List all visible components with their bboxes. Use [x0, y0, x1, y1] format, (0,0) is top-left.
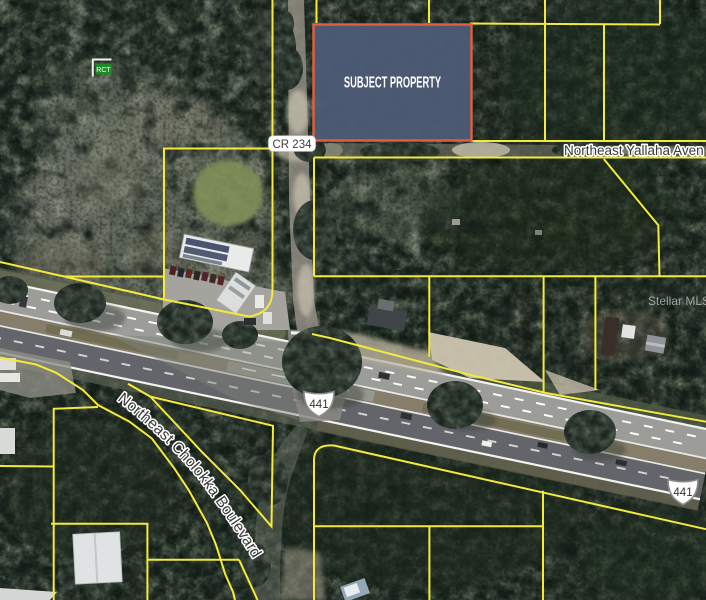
svg-text:441: 441 [309, 399, 328, 411]
svg-text:Stellar MLS: Stellar MLS [648, 294, 706, 308]
svg-text:SUBJECT PROPERTY: SUBJECT PROPERTY [344, 74, 441, 91]
svg-text:Northeast Yallaha Aven: Northeast Yallaha Aven [564, 143, 704, 158]
svg-text:CR 234: CR 234 [273, 139, 313, 151]
svg-text:RCT: RCT [96, 67, 111, 74]
svg-text:441: 441 [673, 487, 692, 499]
